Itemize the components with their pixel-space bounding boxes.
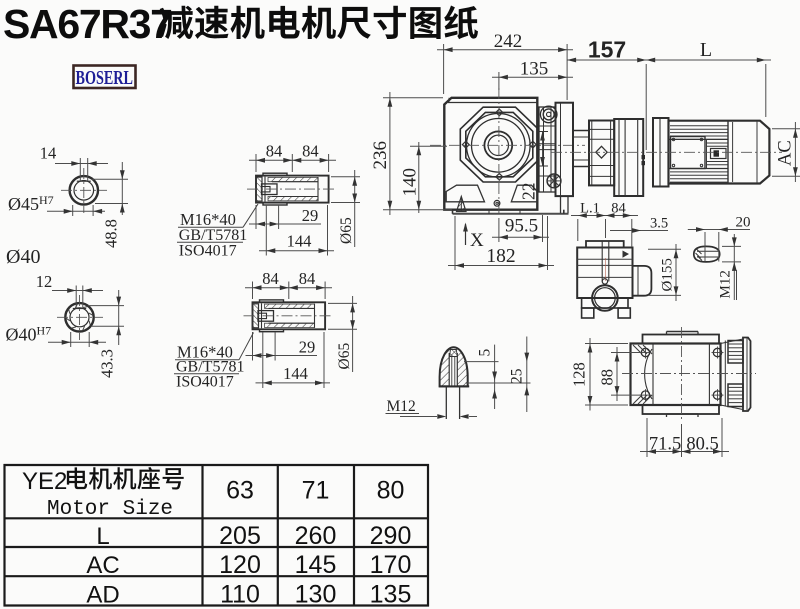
svg-text:135: 135 <box>520 59 549 80</box>
svg-text:71: 71 <box>302 477 330 505</box>
svg-text:M12: M12 <box>718 270 734 298</box>
svg-text:84: 84 <box>262 269 279 288</box>
svg-text:84: 84 <box>611 201 626 217</box>
svg-text:Motor Size: Motor Size <box>47 498 173 521</box>
svg-text:84: 84 <box>299 269 316 288</box>
svg-text:260: 260 <box>295 522 337 550</box>
svg-text:Ø40: Ø40 <box>6 246 40 268</box>
svg-text:L: L <box>96 523 109 550</box>
svg-text:120: 120 <box>219 551 261 579</box>
svg-text:63: 63 <box>226 477 254 505</box>
svg-text:84: 84 <box>302 142 319 161</box>
svg-text:12: 12 <box>36 272 53 291</box>
svg-text:Ø65: Ø65 <box>338 217 355 244</box>
svg-text:X: X <box>470 230 484 251</box>
svg-text:242: 242 <box>494 31 523 52</box>
svg-text:145: 145 <box>295 551 337 579</box>
svg-text:290: 290 <box>370 522 412 550</box>
svg-text:157: 157 <box>588 37 626 63</box>
svg-text:205: 205 <box>219 522 261 550</box>
svg-text:AC: AC <box>776 140 796 166</box>
svg-text:140: 140 <box>400 168 421 197</box>
svg-text:5: 5 <box>477 349 494 357</box>
svg-text:3.5: 3.5 <box>650 216 668 232</box>
svg-text:88: 88 <box>598 369 617 386</box>
svg-text:YE2: YE2 <box>22 468 67 495</box>
svg-text:L.1: L.1 <box>580 201 600 217</box>
svg-text:ISO4017: ISO4017 <box>176 374 234 391</box>
svg-text:20: 20 <box>736 215 751 231</box>
svg-text:M12: M12 <box>387 398 416 415</box>
svg-text:43.3: 43.3 <box>98 349 117 378</box>
svg-text:144: 144 <box>287 232 312 251</box>
svg-text:182: 182 <box>486 246 515 267</box>
svg-text:84: 84 <box>266 142 283 161</box>
svg-text:110: 110 <box>220 581 260 609</box>
svg-text:29: 29 <box>299 338 316 357</box>
svg-text:Ø65: Ø65 <box>336 343 353 370</box>
svg-text:144: 144 <box>283 364 308 383</box>
svg-text:29: 29 <box>302 206 319 225</box>
svg-text:128: 128 <box>570 362 589 387</box>
svg-text:Ø155: Ø155 <box>660 258 676 291</box>
svg-text:L: L <box>700 39 712 61</box>
svg-text:135: 135 <box>370 581 412 609</box>
svg-text:AD: AD <box>86 582 119 609</box>
svg-text:25: 25 <box>509 368 526 384</box>
svg-text:AC: AC <box>86 552 119 579</box>
svg-text:SA67R37: SA67R37 <box>3 1 172 47</box>
svg-text:170: 170 <box>370 551 412 579</box>
svg-text:130: 130 <box>295 581 337 609</box>
svg-text:236: 236 <box>370 141 391 170</box>
svg-text:BOSERL: BOSERL <box>76 68 134 89</box>
svg-text:80: 80 <box>377 477 405 505</box>
svg-text:48.8: 48.8 <box>102 219 121 248</box>
svg-text:95.5: 95.5 <box>505 216 538 237</box>
svg-text:14: 14 <box>40 144 57 163</box>
svg-text:71.5: 71.5 <box>649 435 681 455</box>
svg-text:ISO4017: ISO4017 <box>179 243 237 260</box>
svg-text:22: 22 <box>519 183 539 201</box>
svg-text:GB/T5781: GB/T5781 <box>179 227 247 244</box>
svg-text:80.5: 80.5 <box>686 435 718 455</box>
